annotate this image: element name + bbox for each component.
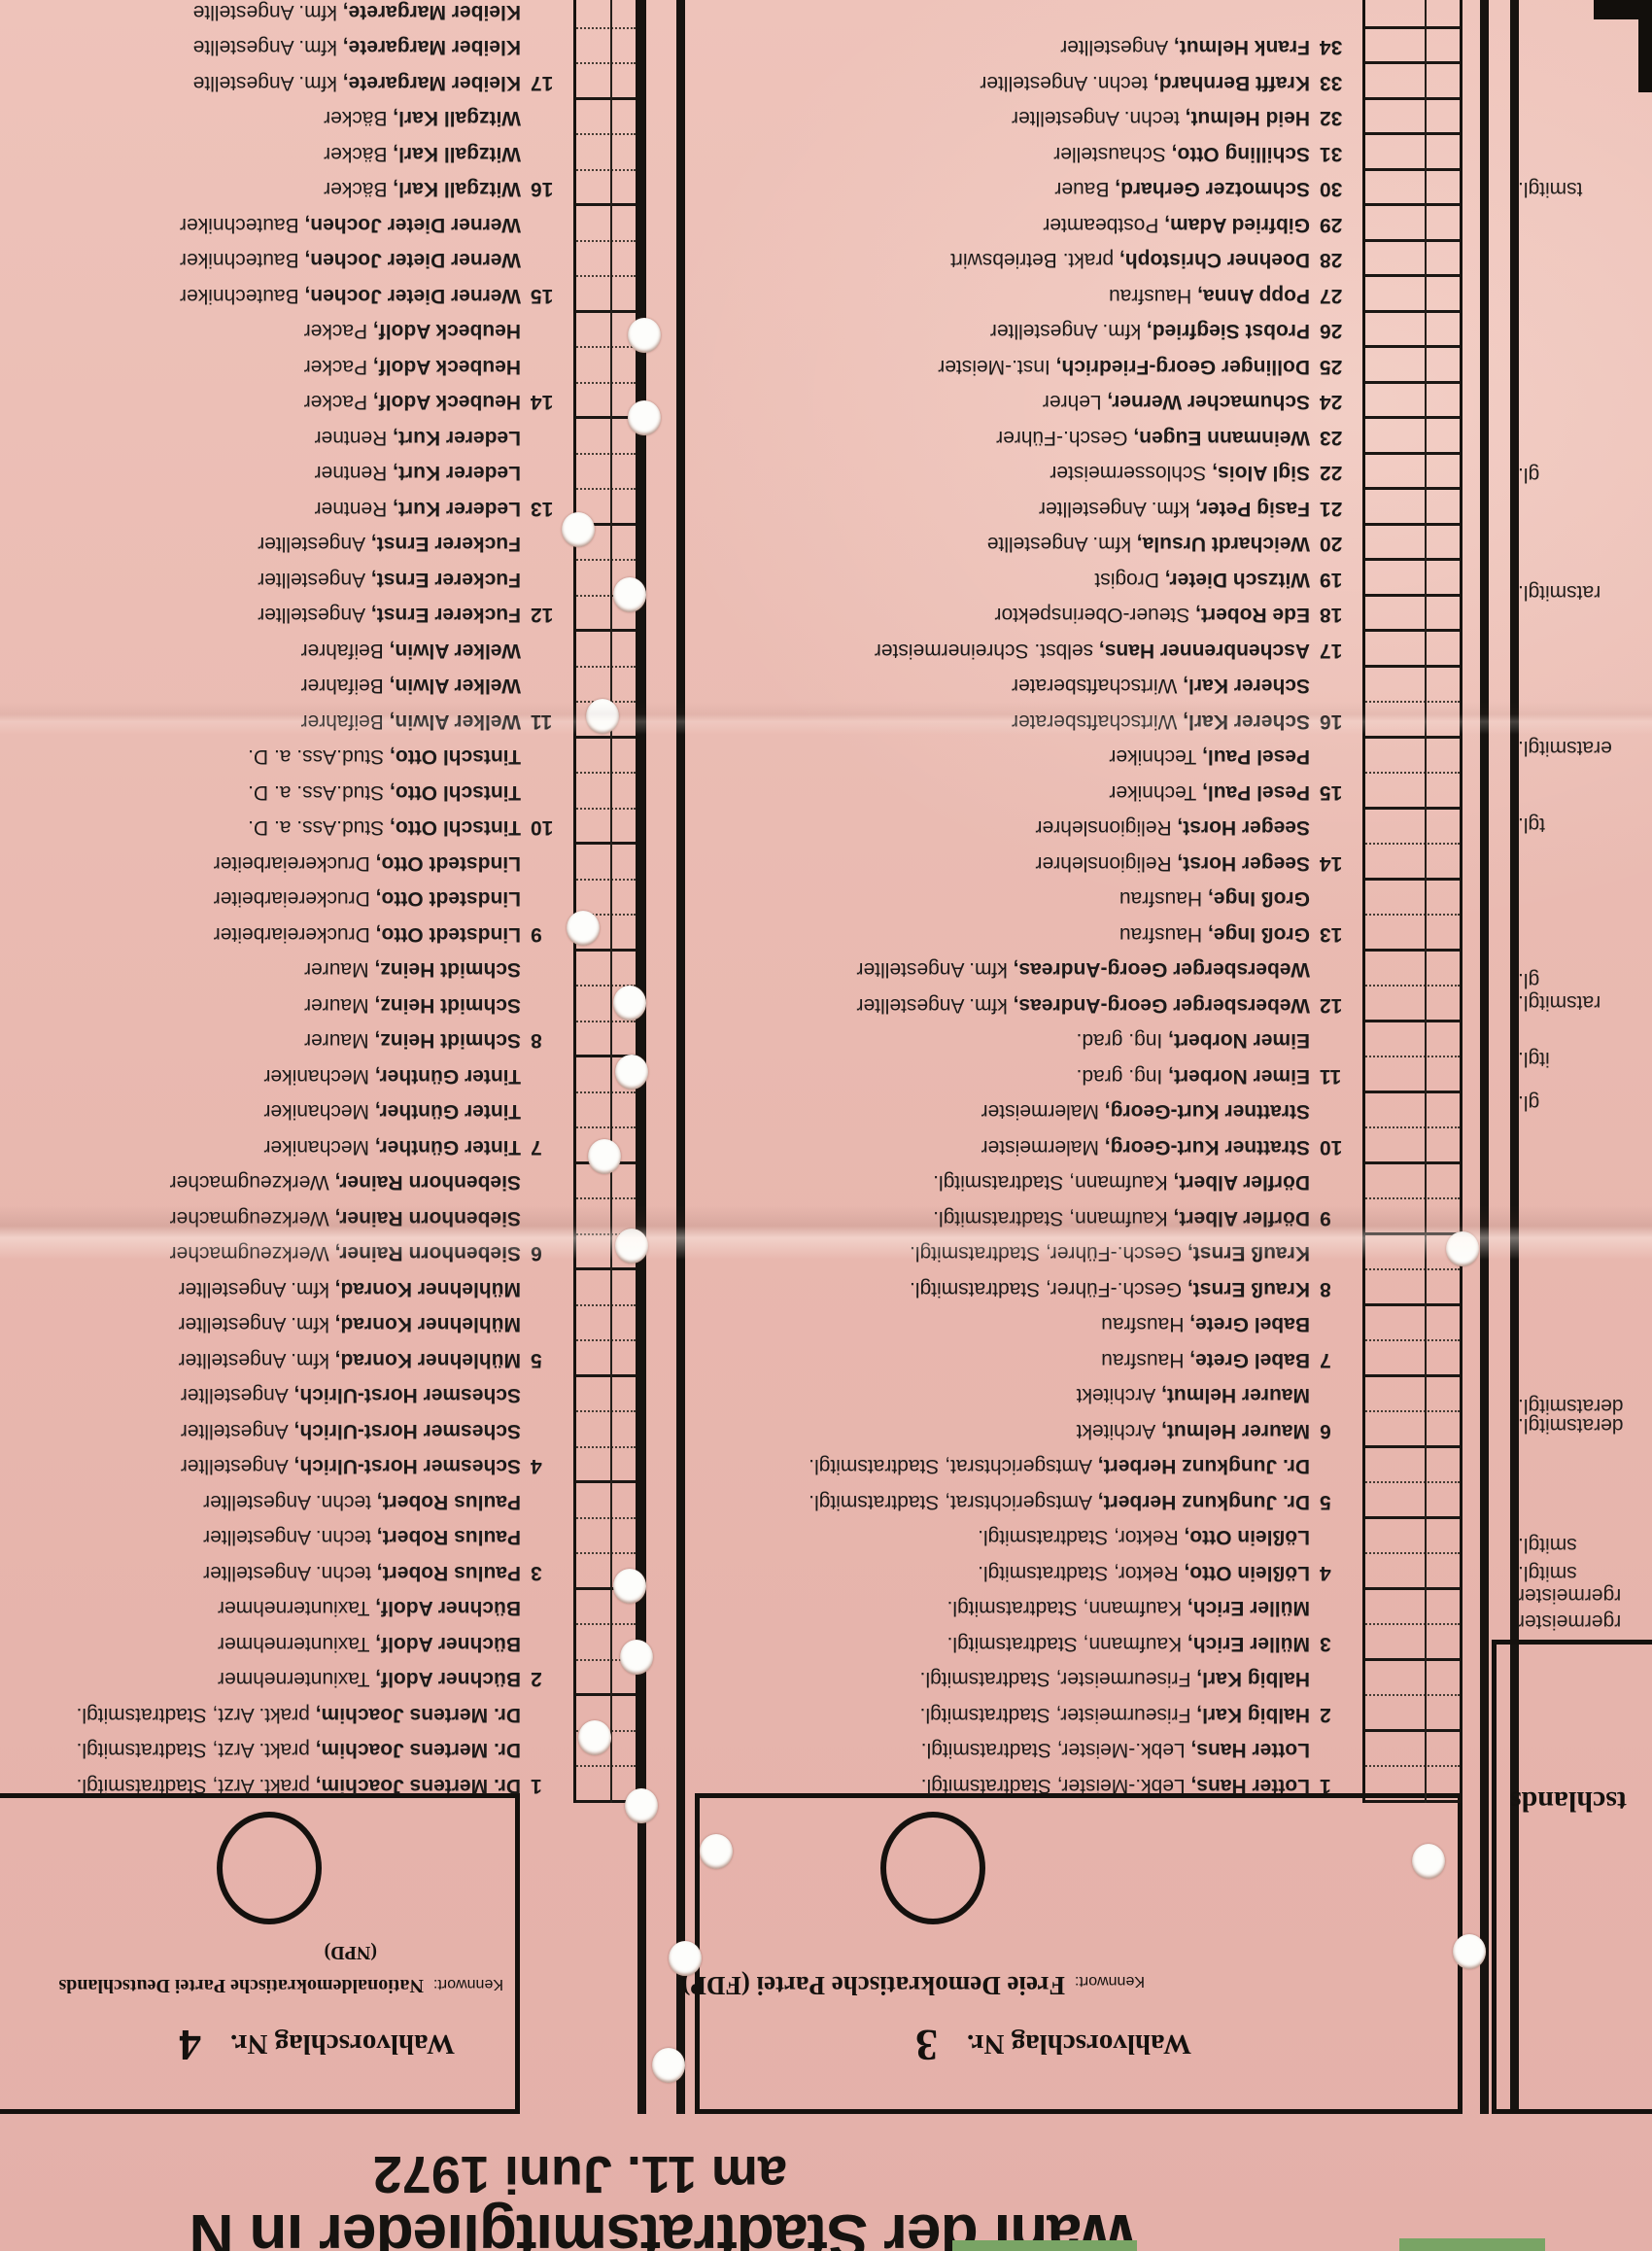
spd-candidate-line-fragment: itgl.: [1518, 1047, 1652, 1070]
candidate-name: Tintschl Otto,: [384, 781, 521, 804]
candidate-number: 27: [1320, 278, 1355, 314]
candidate-name: Lederer Kurt,: [387, 498, 521, 520]
candidate-name: Halbig Karl,: [1190, 1704, 1310, 1726]
candidate-name: Schmidt Heinz,: [369, 959, 521, 982]
candidate-occupation: prakt. Arzt, Stadtratsmitgl.: [77, 1775, 310, 1797]
candidate-occupation: Postbeamter: [1043, 214, 1158, 236]
candidate-row: 4Lößlein Otto, Rektor, Stadtratsmitgl.: [684, 1555, 1355, 1591]
candidate-occupation: Mechaniker: [263, 1065, 369, 1088]
npd-party-abbrev-line: (NPD): [325, 1941, 377, 1963]
candidate-name: Dr. Mertens Joachim,: [310, 1775, 521, 1797]
candidate-name: Pesel Paul,: [1196, 781, 1310, 804]
candidate-occupation: Architekt: [1077, 1385, 1156, 1407]
candidate-row: 27Popp Anna, Hausfrau: [684, 278, 1355, 314]
candidate-row: Halbig Karl, Friseurmeister, Stadtratsmi…: [684, 1661, 1355, 1697]
spd-candidate-line-fragment: eratsmitgl.: [1518, 736, 1652, 759]
candidate-name: Mühlehner Konrad,: [329, 1314, 521, 1336]
candidate-name: Doehner Christoph,: [1114, 250, 1310, 272]
candidate-occupation: Bautechniker: [180, 285, 299, 307]
vote-box: [576, 65, 636, 101]
vote-box: [1365, 1093, 1460, 1129]
vote-box: [1365, 1555, 1460, 1591]
vote-box: [576, 633, 636, 669]
candidate-number: 30: [1320, 171, 1355, 207]
candidate-row: Eimer Norbert, Ing. grad.: [684, 1022, 1355, 1058]
candidate-number: 2: [1320, 1697, 1355, 1733]
candidate-occupation: Religionslehrer: [1036, 817, 1172, 840]
spd-candidate-line-fragment: gl.: [1518, 968, 1652, 991]
candidate-number: 28: [1320, 242, 1355, 278]
vote-box: [1365, 242, 1460, 278]
candidate-occupation: Mechaniker: [263, 1136, 369, 1159]
scan-edge-artifact-green: [1399, 2238, 1545, 2251]
column-separator-line: [1480, 0, 1489, 2114]
spd-candidate-line-fragment: smitgl.: [1518, 1561, 1652, 1584]
candidate-occupation: prakt. Arzt, Stadtratsmitgl.: [77, 1704, 310, 1726]
candidate-row: 8Krauß Ernst, Gesch.-Führer, Stadtratsmi…: [684, 1271, 1355, 1307]
candidate-name: Dr. Mertens Joachim,: [310, 1704, 521, 1726]
candidate-row: 31Schilling Otto, Schausteller: [684, 136, 1355, 172]
punch-hole: [1412, 1844, 1445, 1879]
fdp-wahlvorschlag-number: 3: [915, 2021, 938, 2070]
npd-candidate-list: 1Dr. Mertens Joachim, prakt. Arzt, Stadt…: [2, 0, 566, 1803]
candidate-number: 23: [1320, 420, 1355, 456]
candidate-name: Webersberger Georg-Andreas,: [1008, 994, 1310, 1017]
vote-box: [576, 242, 636, 278]
vote-box: [1365, 987, 1460, 1023]
candidate-number: 3: [1320, 1626, 1355, 1662]
spd-candidate-line-fragment: deratsmitgl.: [1518, 1394, 1652, 1417]
candidate-occupation: Maurer: [304, 959, 369, 982]
npd-wahlvorschlag-label: Wahlvorschlag Nr.: [230, 2028, 455, 2060]
candidate-row: Werner Dieter Jochen, Bautechniker: [2, 207, 566, 243]
candidate-occupation: Bäcker: [324, 143, 387, 165]
punch-hole: [588, 1139, 621, 1174]
candidate-occupation: kfm. Angestellter: [179, 1278, 329, 1300]
candidate-row: Seeger Horst, Religionslehrer: [684, 810, 1355, 846]
candidate-name: Paulus Robert,: [371, 1527, 521, 1549]
candidate-name: Scherer Karl,: [1177, 675, 1310, 698]
candidate-name: Tinter Günther,: [369, 1101, 521, 1124]
vote-box: [1365, 1413, 1460, 1449]
punch-hole: [613, 1569, 646, 1604]
fdp-kennwort-line: Kennwort:Freie Demokratische Partei (FDP…: [681, 1970, 1145, 2000]
candidate-row: 3Paulus Robert, techn. Angestellter: [2, 1555, 566, 1591]
candidate-name: Siebenhorn Rainer,: [329, 1172, 521, 1195]
candidate-row: 7Babel Grete, Hausfrau: [684, 1342, 1355, 1378]
candidate-row: Pesel Paul, Techniker: [684, 739, 1355, 775]
fdp-wahlvorschlag-label: Wahlvorschlag Nr.: [967, 2028, 1191, 2060]
candidate-row: 8Schmidt Heinz, Maurer: [2, 1022, 566, 1058]
candidate-name: Maurer Helmut,: [1155, 1385, 1310, 1407]
npd-list-vote-circle: [217, 1812, 322, 1924]
spd-candidate-line-fragment: smitgl.: [1518, 1533, 1652, 1556]
candidate-name: Müller Erich,: [1182, 1633, 1310, 1655]
candidate-occupation: Kaufmann, Stadtratsmitgl.: [947, 1598, 1183, 1620]
candidate-occupation: Gesch.-Führer, Stadtratsmitgl.: [910, 1278, 1182, 1300]
candidate-occupation: Religionslehrer: [1036, 852, 1172, 875]
candidate-number: 31: [1320, 136, 1355, 172]
vote-box: [576, 29, 636, 65]
vote-box: [1365, 420, 1460, 456]
candidate-occupation: techn. Angestellter: [1012, 108, 1180, 130]
candidate-number: 33: [1320, 65, 1355, 101]
candidate-occupation: Beifahrer: [301, 675, 384, 698]
candidate-name: Lederer Kurt,: [387, 427, 521, 449]
candidate-name: Seeger Horst,: [1172, 817, 1310, 840]
candidate-row: Lindstedt Otto, Druckereiarbeiter: [2, 846, 566, 882]
candidate-name: Webersberger Georg-Andreas,: [1008, 959, 1310, 982]
candidate-occupation: Steuer-Oberinspektor: [995, 605, 1190, 627]
candidate-row: 1Lotter Hans, Lebk.-Meister, Stadtratsmi…: [684, 1768, 1355, 1804]
candidate-occupation: Amtsgerichtsrat, Stadtratsmitgl.: [809, 1491, 1092, 1513]
candidate-row: 26Probst Siegfried, kfm. Angestellter: [684, 313, 1355, 349]
candidate-name: Schmidt Heinz,: [369, 994, 521, 1017]
candidate-row: Mühlehner Konrad, kfm. Angestellter: [2, 1306, 566, 1342]
candidate-row: 12Webersberger Georg-Andreas, kfm. Anges…: [684, 987, 1355, 1023]
candidate-name: Welker Alwin,: [384, 675, 521, 698]
candidate-row: Webersberger Georg-Andreas, kfm. Angeste…: [684, 952, 1355, 987]
candidate-row: 10Strattner Kurt-Georg, Malermeister: [684, 1129, 1355, 1165]
candidate-row: Welker Alwin, Beifahrer: [2, 633, 566, 669]
candidate-row: Lederer Kurt, Rentner: [2, 420, 566, 456]
candidate-name: Mühlehner Konrad,: [329, 1349, 521, 1371]
candidate-name: Babel Grete,: [1184, 1314, 1310, 1336]
vote-box: [1365, 207, 1460, 243]
vote-box: [576, 739, 636, 775]
vote-box: [1365, 384, 1460, 420]
candidate-row: 22Sigl Alois, Schlossermeister: [684, 455, 1355, 491]
vote-box: [1365, 1768, 1460, 1804]
candidate-occupation: Rentner: [315, 463, 388, 485]
candidate-name: Fuckerer Ernst,: [365, 569, 521, 591]
fold-crease: [0, 1205, 1652, 1260]
candidate-number: 32: [1320, 100, 1355, 136]
candidate-row: Scherer Karl, Wirtschaftsberater: [684, 668, 1355, 704]
candidate-occupation: Hausfrau: [1119, 923, 1202, 946]
vote-box: [1365, 1697, 1460, 1733]
npd-header-box: Wahlvorschlag Nr.4 Kennwort:Nationaldemo…: [0, 1793, 520, 2114]
candidate-row: Schmidt Heinz, Maurer: [2, 952, 566, 987]
candidate-row: 19Witzsch Dieter, Drogist: [684, 562, 1355, 598]
candidate-row: Schmidt Heinz, Maurer: [2, 987, 566, 1023]
candidate-occupation: Lebk.-Meister, Stadtratsmitgl.: [921, 1740, 1186, 1762]
candidate-row: Babel Grete, Hausfrau: [684, 1306, 1355, 1342]
candidate-row: Büchner Adolf, Taxiunternehmer: [2, 1626, 566, 1662]
candidate-row: Tintschl Otto, Stud.Ass. a. D.: [2, 775, 566, 811]
candidate-name: Lotter Hans,: [1186, 1775, 1310, 1797]
punch-hole: [562, 512, 595, 547]
candidate-number: 7: [1320, 1342, 1355, 1378]
candidate-name: Witzgall Karl,: [388, 108, 522, 130]
scan-edge-artifact-green: [952, 2240, 1137, 2251]
candidate-occupation: Packer: [304, 356, 367, 378]
punch-hole: [1453, 1934, 1486, 1969]
punch-hole: [578, 1720, 611, 1755]
vote-box: [576, 136, 636, 172]
candidate-number: 13: [1320, 917, 1355, 952]
vote-box: [576, 1519, 636, 1555]
candidate-occupation: Architekt: [1077, 1420, 1156, 1442]
candidate-number: 11: [1320, 1058, 1355, 1094]
candidate-name: Weinmann Eugen,: [1128, 427, 1310, 449]
candidate-name: Müller Erich,: [1182, 1598, 1310, 1620]
candidate-occupation: Malermeister: [981, 1101, 1099, 1124]
candidate-name: Dr. Jungkunz Herbert,: [1092, 1491, 1310, 1513]
candidate-name: Maurer Helmut,: [1155, 1420, 1310, 1442]
vote-box: [576, 1342, 636, 1378]
candidate-number: 22: [1320, 455, 1355, 491]
vote-box: [1365, 633, 1460, 669]
vote-box: [1365, 455, 1460, 491]
ballot-paper: Wahl der Stadtratsmitglieder in N am 11.…: [0, 0, 1652, 2251]
spd-candidate-line-fragment: rgermeister: [1518, 1583, 1652, 1607]
candidate-occupation: Stud.Ass. a. D.: [248, 781, 384, 804]
candidate-row: Kleiber Margarete, kfm. Angestellte: [2, 29, 566, 65]
candidate-name: Paulus Robert,: [371, 1491, 521, 1513]
candidate-occupation: kfm. Angestellte: [193, 72, 337, 94]
candidate-row: 1Dr. Mertens Joachim, prakt. Arzt, Stadt…: [2, 1768, 566, 1804]
candidate-name: Dr. Jungkunz Herbert,: [1092, 1456, 1310, 1478]
vote-box: [576, 1271, 636, 1307]
vote-box: [1365, 1342, 1460, 1378]
spd-candidate-line-fragment: ratsmitgl.: [1518, 580, 1652, 604]
vote-box: [1365, 668, 1460, 704]
candidate-name: Schmidt Heinz,: [369, 1030, 521, 1053]
candidate-name: Büchner Adolf,: [369, 1633, 521, 1655]
candidate-row: 14Heubeck Adolf, Packer: [2, 384, 566, 420]
candidate-number: 15: [531, 278, 566, 314]
spd-candidate-line-fragment: tsmitgl.: [1518, 177, 1652, 200]
candidate-row: Welker Alwin, Beifahrer: [2, 668, 566, 704]
vote-box: [576, 0, 636, 29]
candidate-number: 10: [1320, 1129, 1355, 1165]
candidate-row: 32Heid Helmut, techn. Angestellter: [684, 100, 1355, 136]
candidate-name: Witzsch Dieter,: [1159, 569, 1310, 591]
candidate-occupation: techn. Angestellter: [980, 72, 1148, 94]
vote-box: [1365, 1164, 1460, 1200]
candidate-number: 20: [1320, 526, 1355, 562]
candidate-row: Müller Erich, Kaufmann, Stadtratsmitgl.: [684, 1590, 1355, 1626]
candidate-occupation: Taxiunternehmer: [218, 1598, 369, 1620]
vote-box-divider-line: [610, 0, 612, 1803]
candidate-row: Lederer Kurt, Rentner: [2, 455, 566, 491]
punch-hole: [628, 400, 661, 435]
fdp-candidate-list: 1Lotter Hans, Lebk.-Meister, Stadtratsmi…: [684, 29, 1355, 1803]
vote-box: [1365, 597, 1460, 633]
candidate-occupation: Gesch.-Führer: [996, 427, 1127, 449]
candidate-occupation: Beifahrer: [301, 640, 384, 662]
candidate-occupation: techn. Angestellter: [203, 1491, 371, 1513]
candidate-name: Schilling Otto,: [1166, 143, 1310, 165]
candidate-name: Werner Dieter Jochen,: [299, 285, 521, 307]
candidate-number: 12: [1320, 987, 1355, 1023]
candidate-row: 34Frank Helmut, Angestellter: [684, 29, 1355, 65]
candidate-row: Siebenhorn Rainer, Werkzeugmacher: [2, 1164, 566, 1200]
candidate-row: 5Mühlehner Konrad, kfm. Angestellter: [2, 1342, 566, 1378]
candidate-name: Fuckerer Ernst,: [365, 605, 521, 627]
punch-hole: [615, 1055, 648, 1090]
candidate-row: Tinter Günther, Mechaniker: [2, 1058, 566, 1094]
vote-box: [1365, 1732, 1460, 1768]
vote-box: [1365, 1271, 1460, 1307]
vote-box-divider-line: [1425, 0, 1427, 1803]
candidate-name: Heid Helmut,: [1180, 108, 1310, 130]
candidate-row: Dr. Mertens Joachim, prakt. Arzt, Stadtr…: [2, 1732, 566, 1768]
vote-box: [576, 952, 636, 987]
candidate-name: Seeger Horst,: [1172, 852, 1310, 875]
candidate-row: Schesmer Horst-Ulrich, Angestellter: [2, 1377, 566, 1413]
vote-box: [1365, 491, 1460, 527]
candidate-row: Dörfler Albert, Kaufmann, Stadtratsmitgl…: [684, 1164, 1355, 1200]
vote-box: [576, 1413, 636, 1449]
punch-hole: [625, 1788, 658, 1823]
candidate-name: Probst Siegfried,: [1141, 321, 1310, 343]
candidate-name: Aschenbrenner Hans,: [1093, 640, 1310, 662]
candidate-number: 10: [531, 810, 566, 846]
vote-box: [576, 100, 636, 136]
candidate-number: 13: [531, 491, 566, 527]
candidate-name: Paulus Robert,: [371, 1562, 521, 1584]
candidate-row: 21Fasig Peter, kfm. Angestellter: [684, 491, 1355, 527]
candidate-row: Witzgall Karl, Bäcker: [2, 136, 566, 172]
candidate-occupation: Hausfrau: [1109, 285, 1191, 307]
vote-box: [1365, 1058, 1460, 1094]
candidate-occupation: Maurer: [304, 1030, 369, 1053]
spd-candidate-line-fragment: ratsmitgl.: [1518, 990, 1652, 1014]
candidate-number: 7: [531, 1129, 566, 1165]
candidate-row: Dr. Mertens Joachim, prakt. Arzt, Stadtr…: [2, 1697, 566, 1733]
candidate-occupation: Angestellter: [181, 1385, 289, 1407]
candidate-name: Popp Anna,: [1191, 285, 1310, 307]
vote-box: [576, 384, 636, 420]
candidate-row: 12Fuckerer Ernst, Angestellter: [2, 597, 566, 633]
candidate-name: Halbig Karl,: [1190, 1669, 1310, 1691]
candidate-name: Krauß Ernst,: [1182, 1278, 1310, 1300]
candidate-number: 24: [1320, 384, 1355, 420]
candidate-occupation: kfm. Angestellte: [193, 1, 337, 23]
vote-box: [1365, 349, 1460, 385]
candidate-occupation: Druckereiarbeiter: [214, 888, 370, 911]
candidate-occupation: Techniker: [1109, 781, 1196, 804]
candidate-name: Dr. Mertens Joachim,: [310, 1740, 521, 1762]
candidate-occupation: Packer: [304, 392, 367, 414]
candidate-occupation: Bautechniker: [180, 250, 299, 272]
candidate-row: 4Schesmer Horst-Ulrich, Angestellter: [2, 1448, 566, 1484]
punch-hole: [613, 986, 646, 1021]
candidate-name: Krafft Bernhard,: [1148, 72, 1310, 94]
spd-candidate-line-fragment: gl.: [1518, 463, 1652, 486]
vote-box: [1365, 881, 1460, 917]
candidate-occupation: Hausfrau: [1101, 1314, 1184, 1336]
candidate-name: Tinter Günther,: [369, 1136, 521, 1159]
vote-box: [576, 171, 636, 207]
vote-box: [576, 810, 636, 846]
vote-box: [576, 278, 636, 314]
candidate-name: Lindstedt Otto,: [370, 852, 521, 875]
candidate-number: 17: [531, 65, 566, 101]
candidate-row: 2Halbig Karl, Friseurmeister, Stadtratsm…: [684, 1697, 1355, 1733]
vote-box: [1365, 1519, 1460, 1555]
fdp-party-name: Freie Demokratische Partei (FDP): [681, 1971, 1065, 2000]
candidate-name: Babel Grete,: [1184, 1349, 1310, 1371]
vote-box: [1365, 526, 1460, 562]
spd-candidate-line-fragment: gl.: [1518, 1091, 1652, 1114]
candidate-name: Welker Alwin,: [384, 640, 521, 662]
candidate-name: Lindstedt Otto,: [370, 923, 521, 946]
candidate-row: Paulus Robert, techn. Angestellter: [2, 1484, 566, 1520]
scan-edge-artifact: [1638, 0, 1652, 92]
npd-vote-box-column: [573, 0, 638, 1803]
candidate-name: Groß Inge,: [1202, 888, 1310, 911]
candidate-occupation: Angestellter: [258, 534, 365, 556]
candidate-row: 9Lindstedt Otto, Druckereiarbeiter: [2, 917, 566, 952]
vote-box: [1365, 952, 1460, 987]
candidate-row: Kleiber Margarete, kfm. Angestellte: [2, 0, 566, 29]
candidate-name: Schesmer Horst-Ulrich,: [289, 1420, 521, 1442]
candidate-name: Lößlein Otto,: [1179, 1527, 1310, 1549]
candidate-name: Groß Inge,: [1202, 923, 1310, 946]
vote-box: [1365, 1448, 1460, 1484]
candidate-name: Schumacher Werner,: [1102, 392, 1310, 414]
candidate-occupation: Hausfrau: [1119, 888, 1202, 911]
candidate-name: Lederer Kurt,: [387, 463, 521, 485]
candidate-occupation: Drogist: [1094, 569, 1159, 591]
candidate-occupation: kfm. Angestellter: [857, 959, 1008, 982]
punch-hole: [613, 577, 646, 612]
vote-box: [1365, 313, 1460, 349]
candidate-name: Witzgall Karl,: [388, 179, 522, 201]
candidate-name: Tinter Günther,: [369, 1065, 521, 1088]
candidate-occupation: kfm. Angestellter: [179, 1349, 329, 1371]
candidate-occupation: Werkzeugmacher: [170, 1172, 329, 1195]
candidate-row: 5Dr. Jungkunz Herbert, Amtsgerichtsrat, …: [684, 1484, 1355, 1520]
candidate-name: Fuckerer Ernst,: [365, 534, 521, 556]
candidate-name: Lindstedt Otto,: [370, 888, 521, 911]
candidate-occupation: Bautechniker: [180, 214, 299, 236]
vote-box: [576, 207, 636, 243]
candidate-row: Tinter Günther, Mechaniker: [2, 1093, 566, 1129]
candidate-number: 12: [531, 597, 566, 633]
candidate-occupation: Lebk.-Meister, Stadtratsmitgl.: [921, 1775, 1186, 1797]
candidate-number: 34: [1320, 29, 1355, 65]
vote-box: [576, 420, 636, 456]
candidate-row: 10Tintschl Otto, Stud.Ass. a. D.: [2, 810, 566, 846]
candidate-row: Strattner Kurt-Georg, Malermeister: [684, 1093, 1355, 1129]
vote-box: [576, 846, 636, 882]
candidate-occupation: Schlossermeister: [1050, 463, 1206, 485]
vote-box: [1365, 1484, 1460, 1520]
candidate-occupation: Wirtschaftsberater: [1012, 675, 1177, 698]
candidate-name: Werner Dieter Jochen,: [299, 250, 521, 272]
fdp-wahlvorschlag-line: Wahlvorschlag Nr.3: [915, 2025, 1191, 2076]
npd-party-name: Nationaldemokratische Partei Deutschland…: [58, 1975, 424, 1996]
candidate-occupation: Techniker: [1109, 746, 1196, 769]
vote-box: [1365, 1306, 1460, 1342]
candidate-occupation: kfm. Angestellter: [857, 994, 1008, 1017]
candidate-row: 17Kleiber Margarete, kfm. Angestellte: [2, 65, 566, 101]
candidate-row: 13Groß Inge, Hausfrau: [684, 917, 1355, 952]
candidate-occupation: Druckereiarbeiter: [214, 923, 370, 946]
vote-box: [576, 455, 636, 491]
candidate-occupation: techn. Angestellter: [203, 1527, 371, 1549]
candidate-occupation: Malermeister: [981, 1136, 1099, 1159]
vote-box: [1365, 1590, 1460, 1626]
candidate-occupation: Friseurmeister, Stadtratsmitgl.: [920, 1669, 1191, 1691]
candidate-name: Gibfried Adam,: [1158, 214, 1310, 236]
candidate-row: 15Pesel Paul, Techniker: [684, 775, 1355, 811]
candidate-number: 4: [1320, 1555, 1355, 1591]
